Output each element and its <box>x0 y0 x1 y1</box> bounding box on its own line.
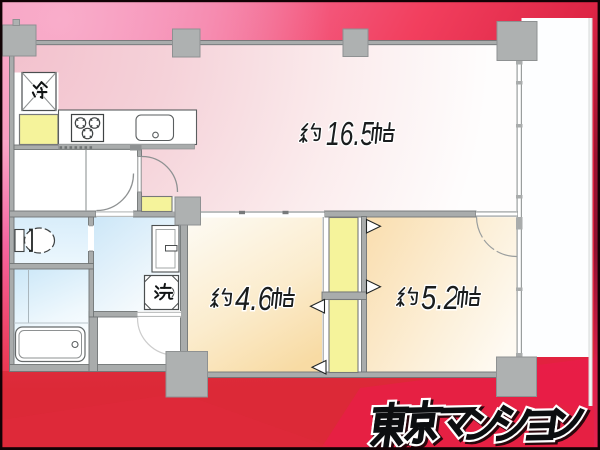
svg-text:16.5: 16.5 <box>326 115 374 152</box>
svg-text:5.2: 5.2 <box>421 279 459 316</box>
svg-text:4.6: 4.6 <box>235 280 274 317</box>
